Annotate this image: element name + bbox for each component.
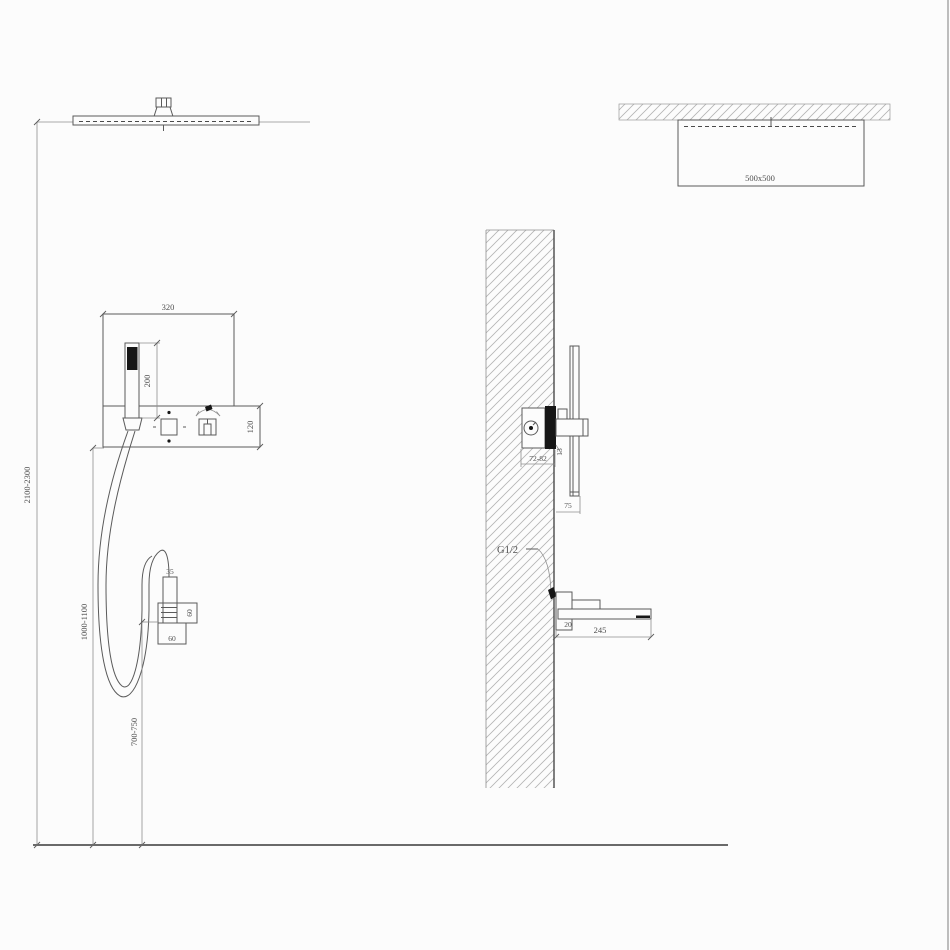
dim-valve-depth: 72-82 — [529, 454, 547, 463]
plan-view: 500x500 — [619, 104, 890, 186]
ceiling-hatch — [619, 104, 890, 120]
panel-upper-plate — [103, 314, 234, 406]
spout-aerator — [636, 616, 650, 619]
dim-holder-depth: 60 — [185, 609, 194, 617]
dim-trim-depth: 13 — [555, 448, 564, 456]
dim-outlet-height: 700-750 — [129, 718, 139, 746]
rain-shower-head-side — [73, 98, 259, 131]
dimension-outlet-height: 700-750 — [129, 619, 158, 848]
dim-head-size: 500x500 — [745, 173, 775, 183]
drawing-canvas: 2100-2300 320 120 — [0, 0, 950, 950]
dimension-handshower: 200 — [139, 340, 160, 421]
dim-handshower-length: 200 — [142, 375, 152, 388]
hand-shower-front — [123, 343, 142, 430]
thread-label: G1/2 — [497, 545, 518, 556]
mixer-panel: 320 120 200 — [98, 302, 263, 697]
hose-wall-outlet: 35 60 60 — [158, 567, 197, 644]
dim-spout-drop: 20 — [564, 620, 572, 629]
dimension-ceiling-height: 2100-2300 — [22, 119, 40, 848]
hand-shower-head — [127, 347, 138, 370]
spout-side: 20 245 — [548, 587, 654, 640]
dim-handle-clearance: 75 — [564, 501, 572, 510]
diverter-button — [153, 411, 186, 443]
temperature-lever — [196, 405, 220, 436]
shower-hose — [98, 431, 169, 697]
section-view: 72-82 13 75 G1/2 — [486, 230, 654, 788]
dim-panel-height: 120 — [245, 421, 255, 434]
dim-holder-width: 35 — [166, 567, 174, 576]
wall-hatch — [486, 230, 554, 788]
dimension-mixer-height: 1000-1100 — [79, 445, 104, 848]
front-view: 2100-2300 320 120 — [22, 98, 728, 848]
dim-spout-length: 245 — [594, 625, 607, 635]
technical-drawing: 2100-2300 320 120 — [0, 0, 950, 950]
dim-mixer-height: 1000-1100 — [79, 604, 89, 641]
valve-trim — [545, 406, 556, 449]
dim-panel-width: 320 — [162, 302, 175, 312]
dim-holder-base: 60 — [168, 634, 176, 643]
hand-shower-side: 75 — [556, 346, 588, 514]
dim-ceiling-height: 2100-2300 — [22, 467, 32, 504]
hand-shower-bracket — [123, 418, 142, 430]
